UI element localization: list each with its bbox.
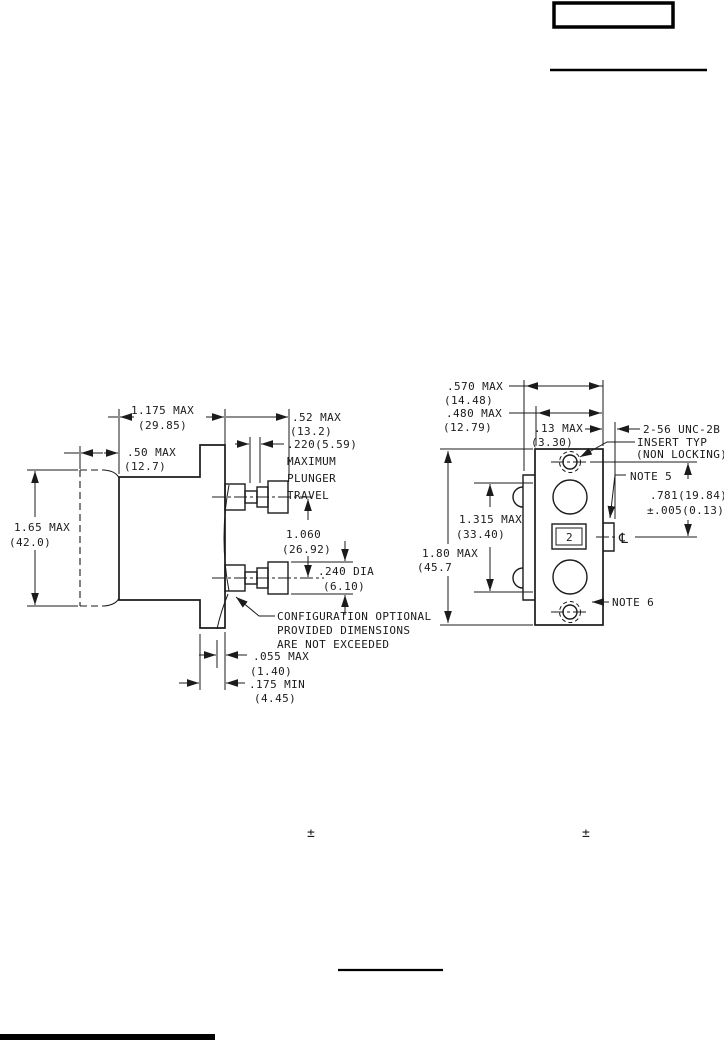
note6-label: NOTE 6 [612,596,654,609]
dim-diameter-in: .240 DIA [318,565,374,578]
dim-button-span: 1.315 MAX (33.40) [456,483,533,592]
side-view: 1.175 MAX (29.85) .52 MAX (13.2) .50 MAX… [9,404,432,705]
config-note-l2: PROVIDED DIMENSIONS [277,624,410,637]
dim-hole-tol: ±.005(0.13) [647,504,724,517]
insert-note-l3: (NON LOCKING) [636,448,724,461]
drawing-page: ± ± [0,0,724,1045]
dim-travel-l3: PLUNGER [287,472,336,485]
dim-bushing-in: .175 MIN [249,678,305,691]
note6-callout: NOTE 6 [592,596,654,609]
dim-body-height: 1.65 MAX (42.0) [9,470,78,606]
footer-bar [0,1034,215,1040]
dim-height-mm: (45.7 [417,561,452,574]
insert-note-l1: 2-56 UNC-2B [643,423,720,436]
dim-bushing-mm: (4.45) [254,692,296,705]
side-tab-left [513,475,535,600]
pushbutton-upper [553,480,587,514]
dim-button-span-in: 1.315 MAX [459,513,522,526]
dim-travel-l2: MAXIMUM [287,455,336,468]
dim-body-width-in: 1.175 MAX [131,404,194,417]
dim-travel-value: .220(5.59) [287,438,357,451]
dim-body-height-mm: (42.0) [9,536,51,549]
dim-height-in: 1.80 MAX [422,547,478,560]
dim-width-body-in: .480 MAX [446,407,502,420]
dim-hole-in: .781(19.84) [650,489,724,502]
dim-optional-depth-mm: (12.7) [124,460,166,473]
dim-spacing-in: 1.060 [286,528,321,541]
note5-label: NOTE 5 [630,470,672,483]
dim-optional-depth: .50 MAX (12.7) [64,446,176,473]
dim-button-span-mm: (33.40) [456,528,505,541]
position-label: 2 [566,531,573,544]
dim-optional-depth-in: .50 MAX [127,446,176,459]
dim-tab-in: .13 MAX [534,422,583,435]
dim-tab-mm: (3.30) [531,436,573,449]
dim-body-width-mm: (29.85) [138,419,187,432]
dim-width-outer-mm: (14.48) [444,394,493,407]
tolerance-symbol-left: ± [307,826,315,841]
position-label-box: 2 [552,524,586,549]
front-view: 2 .570 MAX (14.48) .4 [417,380,724,625]
optional-envelope-dashed [80,470,119,606]
centerline-symbol: ℄ [618,531,628,547]
dim-plunger-ext-in: .52 MAX [292,411,341,424]
configuration-note: CONFIGURATION OPTIONAL PROVIDED DIMENSIO… [236,597,432,651]
dim-width-outer-in: .570 MAX [447,380,503,393]
dim-plunger-travel: .220(5.59) MAXIMUM PLUNGER TRAVEL [235,437,357,502]
stamp-box [554,3,673,27]
dim-plunger-ext-mm: (13.2) [290,425,332,438]
tolerance-symbol-right: ± [582,826,590,841]
dim-panel-gap-mm: (1.40) [250,665,292,678]
config-note-l1: CONFIGURATION OPTIONAL [277,610,432,623]
dim-spacing-mm: (26.92) [282,543,331,556]
dim-panel-gap-in: .055 MAX [253,650,309,663]
dim-width-body-mm: (12.79) [443,421,492,434]
dim-body-height-in: 1.65 MAX [14,521,70,534]
optional-config-curve [217,485,229,629]
drawing-canvas: ± ± [0,0,724,1045]
pushbutton-lower [553,560,587,594]
insert-hole-bottom [551,602,589,623]
dim-diameter-mm: (6.10) [323,580,365,593]
